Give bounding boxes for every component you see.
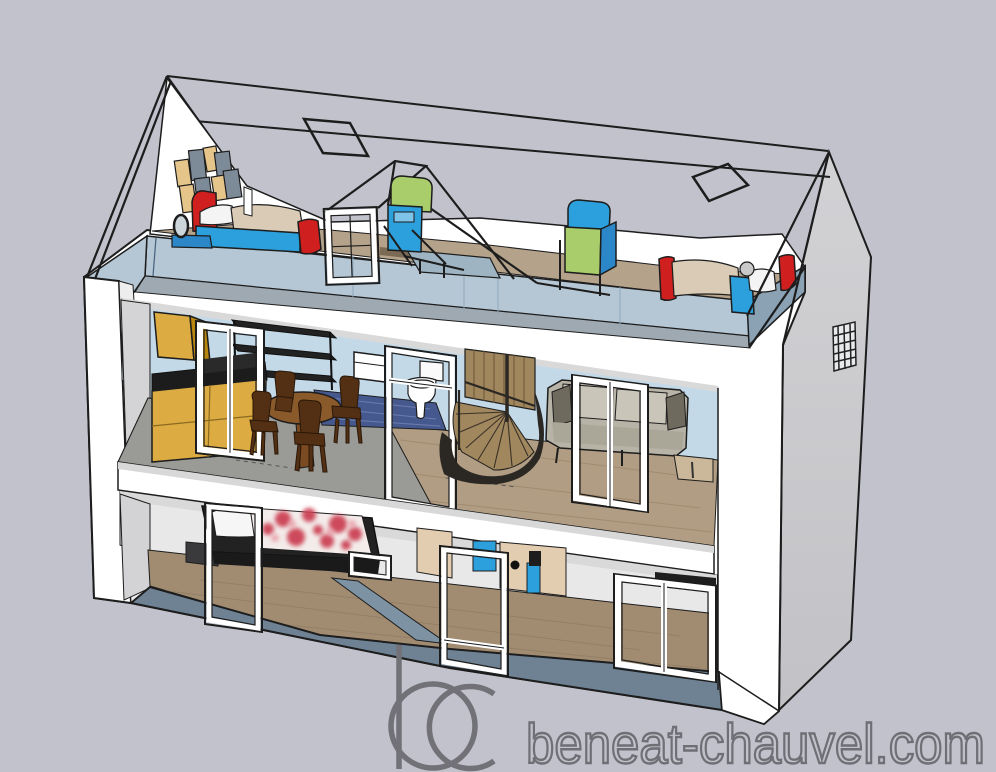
svg-text:beneat-chauvel.com: beneat-chauvel.com: [526, 712, 985, 772]
